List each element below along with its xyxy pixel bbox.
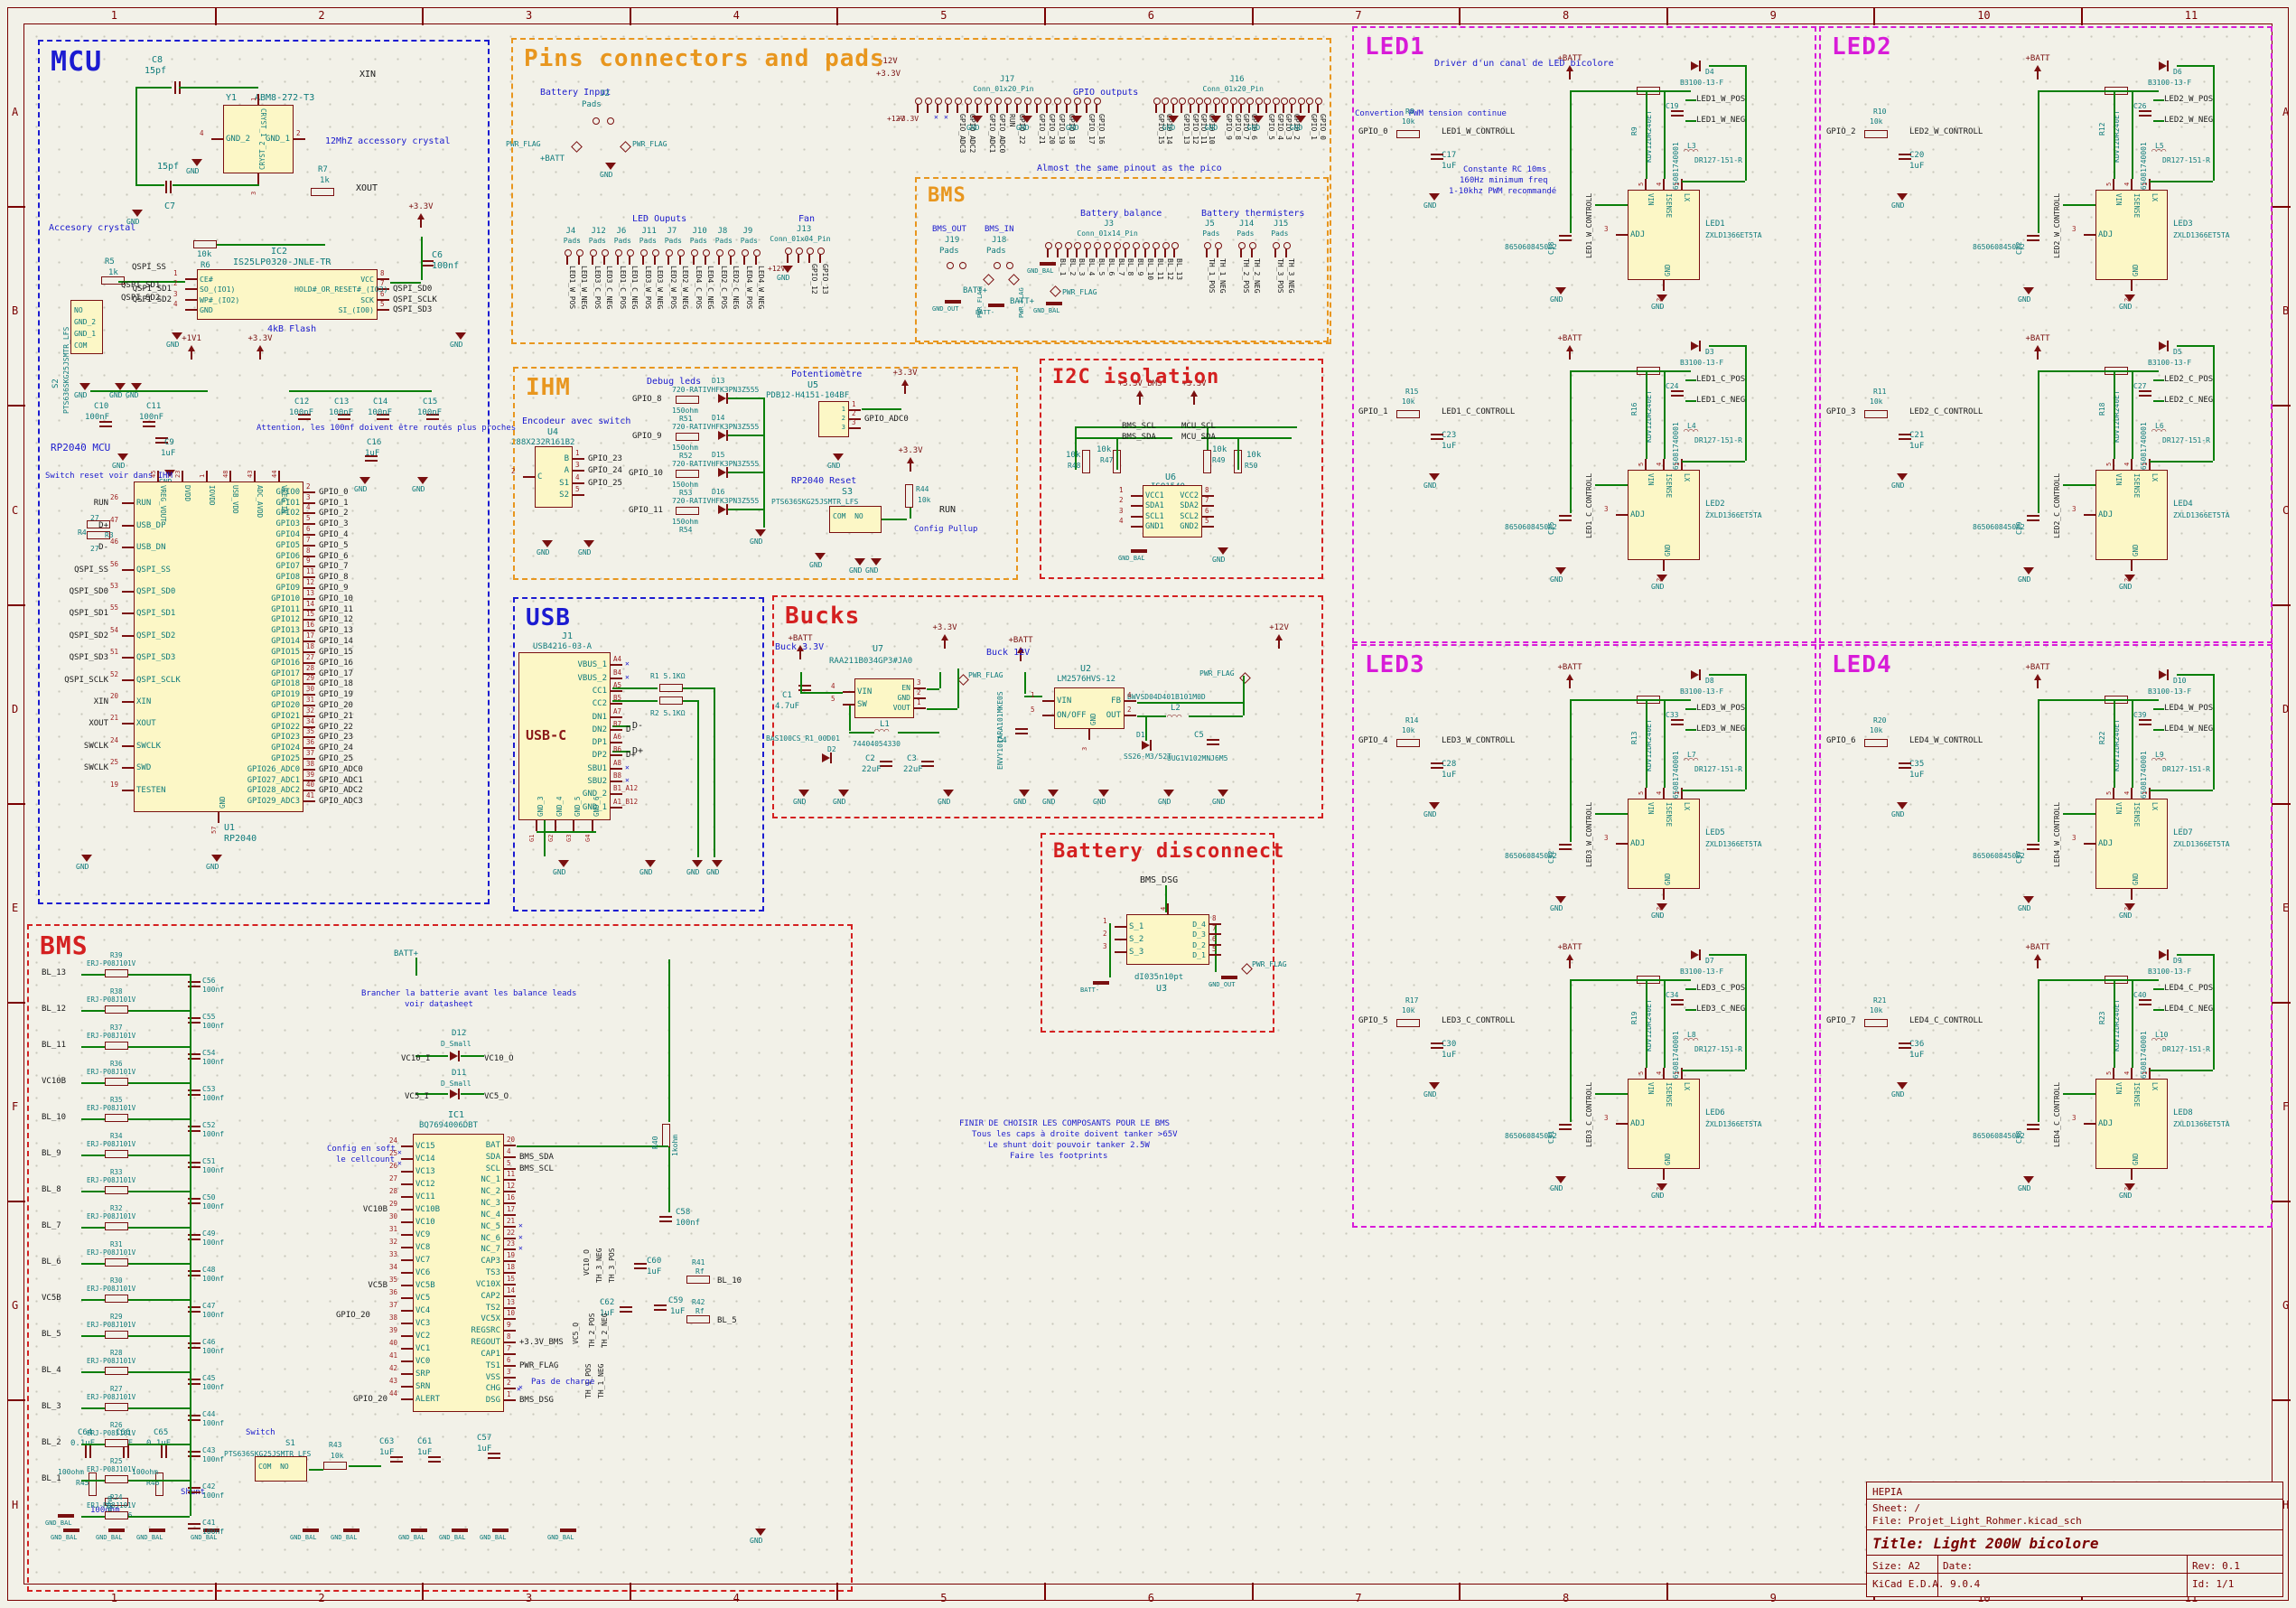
pin-stub bbox=[1096, 104, 1097, 113]
schematic-text: 865060845002 bbox=[1973, 1133, 2025, 1140]
pin-number: 4 bbox=[173, 301, 178, 308]
connector-ref-J9: J9 bbox=[743, 228, 753, 236]
pin-name: USB_DN bbox=[136, 544, 166, 552]
section-title-led3: LED3 bbox=[1365, 653, 1425, 677]
pin-name: VIN bbox=[1647, 473, 1655, 486]
pin-name: WP#_(IO2) bbox=[200, 296, 239, 304]
net-label: LED1_W_POS bbox=[1696, 96, 1745, 104]
gnd-symbol-icon bbox=[1295, 116, 1306, 123]
pin-number: 5 bbox=[507, 1160, 511, 1167]
pin-number: 18 bbox=[306, 643, 314, 650]
net-label: LED2_W_CONTROLL bbox=[1909, 128, 1983, 136]
schematic-text: LED3 bbox=[2173, 220, 2193, 229]
pin-stub bbox=[1046, 104, 1048, 113]
gnd-label: GND bbox=[1891, 1091, 1904, 1098]
pin-number: 8 bbox=[507, 1333, 511, 1341]
frame-coordinate-label: H bbox=[2282, 1500, 2289, 1510]
net-label: LED2_W_NEG bbox=[2164, 117, 2213, 125]
pin-stub bbox=[947, 104, 948, 113]
net-label: GPIO_9 bbox=[1225, 114, 1232, 140]
schematic-text: B3100-13-F bbox=[2148, 968, 2191, 976]
connector-value: Pads bbox=[1202, 230, 1219, 238]
pin-stub bbox=[603, 256, 605, 265]
schematic-text: Tous les caps à droite doivent tanker >6… bbox=[972, 1131, 1178, 1139]
wire bbox=[2153, 708, 2164, 710]
net-label: GPIO_ADC1 bbox=[988, 114, 995, 153]
wire bbox=[1570, 90, 1691, 92]
pin-stub bbox=[2131, 280, 2133, 291]
pin-stub bbox=[401, 1348, 413, 1350]
gnd-symbol-icon bbox=[1555, 896, 1566, 903]
pin-number: 31 bbox=[306, 696, 314, 704]
gnd-symbol-icon bbox=[1897, 473, 1908, 481]
frame-coordinate-label: 3 bbox=[526, 1593, 532, 1603]
schematic-text: R10 bbox=[1873, 108, 1886, 116]
pin-stub bbox=[1016, 104, 1018, 113]
wire bbox=[190, 1444, 191, 1480]
capacitor-symbol bbox=[1671, 390, 1684, 392]
capacitor-value: 100nf bbox=[202, 1492, 224, 1500]
pin-number: 25 bbox=[110, 759, 118, 766]
pin-stub bbox=[1616, 1123, 1628, 1125]
gnd-symbol-icon bbox=[1555, 1176, 1566, 1183]
net-label: LED3_W_NEG bbox=[656, 266, 663, 309]
schematic-text: D9 bbox=[2173, 958, 2182, 965]
frame-coordinate-label: 1 bbox=[111, 1593, 117, 1603]
gnd-label: GND bbox=[2018, 576, 2030, 584]
wire bbox=[81, 1118, 190, 1120]
pin-name: GPIO14 bbox=[220, 638, 300, 646]
wire bbox=[81, 1046, 190, 1048]
net-label: D+ bbox=[626, 752, 636, 760]
pin-stub bbox=[401, 1373, 413, 1375]
section-title-pins: Pins connectors and pads bbox=[524, 47, 885, 70]
pin-number: 14 bbox=[507, 1287, 515, 1295]
net-label: GPIO_ADC0 bbox=[319, 766, 363, 774]
pin-name: 1 bbox=[766, 407, 845, 413]
wire bbox=[2150, 181, 2213, 182]
wire bbox=[2038, 370, 2159, 372]
resistor-symbol bbox=[105, 1511, 128, 1519]
pin-name: GPIO9 bbox=[220, 584, 300, 593]
pin-stub bbox=[573, 458, 584, 460]
connector-ref-J3: J3 bbox=[1104, 220, 1114, 229]
resistor-symbol bbox=[105, 1114, 128, 1122]
pin-name: GPIO22 bbox=[220, 724, 300, 732]
pin-number: 21 bbox=[507, 1218, 515, 1225]
pin-stub bbox=[986, 104, 988, 113]
net-label: LED1_C_POS bbox=[1696, 376, 1745, 384]
schematic-text: R20 bbox=[1873, 717, 1886, 725]
pin-number: 3 bbox=[251, 192, 257, 195]
pin-name: ISENSE bbox=[2133, 802, 2141, 827]
section-title-led1: LED1 bbox=[1365, 35, 1425, 59]
pin-stub bbox=[1036, 104, 1038, 113]
wire bbox=[2038, 90, 2039, 233]
wire bbox=[2038, 699, 2159, 701]
gnd-symbol-icon bbox=[1657, 903, 1667, 911]
pin-number: 42 bbox=[389, 1365, 397, 1372]
pin-stub bbox=[2113, 1068, 2114, 1079]
wire bbox=[190, 1155, 191, 1191]
pin-number: 56 bbox=[110, 561, 118, 568]
wire bbox=[190, 1191, 191, 1227]
pin-name: SCL2 bbox=[1119, 513, 1199, 521]
wire bbox=[1745, 674, 1747, 790]
capacitor-ref: C49 bbox=[202, 1230, 215, 1238]
connector-value: Pads bbox=[1271, 230, 1288, 238]
connector-ref-J10: J10 bbox=[693, 228, 707, 236]
no-connect-icon: ✕ bbox=[934, 114, 938, 121]
capacitor-symbol bbox=[1431, 767, 1443, 769]
pin-number: 9 bbox=[507, 1322, 511, 1329]
net-label: BL_9 bbox=[42, 1150, 61, 1158]
inductor-icon: ◠◠◠ bbox=[2151, 1037, 2166, 1045]
pin-number: 3 bbox=[1604, 1115, 1609, 1122]
pin-number: 5 bbox=[1031, 706, 1035, 714]
connector-value: Conn_01x14_Pin bbox=[1077, 230, 1137, 238]
pin-stub bbox=[1066, 104, 1068, 113]
schematic-text: B3100-13-F bbox=[2148, 688, 2191, 696]
pin-name: LX bbox=[1684, 193, 1691, 201]
frame-coordinate-label: 4 bbox=[733, 10, 740, 21]
net-label: LED1_C_NEG bbox=[1696, 397, 1745, 405]
wire bbox=[1570, 979, 1691, 981]
net-label: GPIO_20 bbox=[297, 1396, 387, 1404]
pin-stub bbox=[1699, 669, 1701, 680]
net-label: GPIO_12 bbox=[1191, 114, 1199, 145]
chip-inner-label: NO bbox=[74, 307, 83, 314]
net-label: GPIO_ADC3 bbox=[319, 798, 363, 806]
pin-stub bbox=[2131, 459, 2133, 470]
net-label: QSPI_SD2 bbox=[18, 632, 108, 640]
section-title-battd: Battery disconnect bbox=[1053, 842, 1284, 862]
schematic-text: C24 bbox=[1666, 383, 1678, 390]
pin-number: 4 bbox=[2124, 463, 2131, 466]
pin-number: 3 bbox=[917, 679, 921, 687]
pin-number: 54 bbox=[110, 627, 118, 634]
pin-number: 29 bbox=[306, 675, 314, 682]
pin-name: GPIO27_ADC1 bbox=[220, 777, 300, 785]
resistor-symbol bbox=[1864, 130, 1888, 138]
capacitor-symbol bbox=[1899, 762, 1911, 764]
pin-number: 34 bbox=[389, 1264, 397, 1271]
pin-name: NC_5 bbox=[421, 1223, 500, 1231]
pin-number: 44 bbox=[389, 1390, 397, 1398]
capacitor-symbol bbox=[1559, 1128, 1572, 1130]
pin-number: 2 bbox=[173, 280, 178, 287]
gnd-label: GND bbox=[1550, 296, 1563, 304]
pin-number: 27 bbox=[389, 1175, 397, 1183]
pin-name: ADJ bbox=[2098, 231, 2113, 239]
frame-coordinate-label: F bbox=[12, 1101, 18, 1112]
pin-number: 8 bbox=[1205, 487, 1209, 494]
net-label: D+ bbox=[18, 522, 108, 530]
pin-stub bbox=[1067, 248, 1069, 257]
power-net-label: +BATT bbox=[1558, 664, 1582, 672]
title-block-sheet: Sheet: / bbox=[1872, 1502, 1920, 1514]
capacitor-symbol bbox=[2027, 235, 2039, 237]
net-label: LED1_C_POS bbox=[619, 266, 626, 309]
capacitor-symbol bbox=[2027, 1128, 2039, 1130]
schematic-text: ZXLD1366ET5TA bbox=[1705, 841, 1762, 848]
pin-name: QSPI_SCLK bbox=[136, 677, 181, 685]
wire bbox=[1709, 345, 1745, 347]
gnd-label: GND bbox=[1423, 811, 1436, 818]
wire bbox=[2150, 461, 2213, 463]
schematic-text: B3100-13-F bbox=[1680, 968, 1723, 976]
pin-name: ISENSE bbox=[1666, 802, 1673, 827]
pin-number: 7 bbox=[507, 1345, 511, 1352]
connector-value: Pads bbox=[741, 238, 758, 245]
schematic-text: 1uF bbox=[1442, 163, 1456, 171]
gnd-label: GND bbox=[1247, 125, 1260, 132]
frame-coordinate-label: B bbox=[2282, 305, 2289, 316]
schematic-text: C27 bbox=[2133, 383, 2146, 390]
divider bbox=[1867, 1573, 2282, 1574]
pin-stub bbox=[1240, 248, 1242, 257]
resistor-value: ERJ-P08J101V bbox=[87, 1033, 135, 1040]
net-label: LED4_W_CONTROLL bbox=[1909, 737, 1983, 745]
pin-stub bbox=[1172, 104, 1174, 113]
pin-number: 7 bbox=[1205, 497, 1209, 504]
pin-number: 41 bbox=[389, 1352, 397, 1360]
wire bbox=[1682, 790, 1745, 791]
net-label: GPIO_ADC0 bbox=[998, 114, 1005, 153]
schematic-text: 10k bbox=[1870, 118, 1882, 126]
net-label: SWCLK bbox=[18, 764, 108, 772]
pin-number: 38 bbox=[306, 761, 314, 768]
gnd-symbol-icon bbox=[1210, 116, 1221, 123]
gnd-symbol-icon bbox=[1253, 116, 1264, 123]
section-title-led2: LED2 bbox=[1832, 35, 1892, 59]
wire bbox=[1595, 813, 1628, 815]
net-label: LED4_C_POS bbox=[2164, 985, 2213, 993]
wire bbox=[2132, 370, 2133, 459]
net-label: VC5B bbox=[297, 1282, 387, 1290]
pin-name: VIN bbox=[1647, 193, 1655, 206]
pin-name: GPIO28_ADC2 bbox=[220, 787, 300, 795]
pin-stub bbox=[611, 742, 622, 743]
pin-name: VREG_IN bbox=[281, 485, 288, 514]
pin-name: ISENSE bbox=[2133, 193, 2141, 218]
pin-stub bbox=[1115, 951, 1126, 953]
pin-number: 30 bbox=[306, 686, 314, 693]
net-label: GPIO_23 bbox=[588, 455, 622, 463]
pin-name: ISENSE bbox=[1666, 193, 1673, 218]
pin-stub bbox=[1569, 959, 1571, 968]
pin-number: G3 bbox=[566, 835, 573, 842]
pin-stub bbox=[798, 254, 799, 263]
diode-icon bbox=[2159, 670, 2167, 679]
net-label: TH_1_POS bbox=[1208, 258, 1215, 294]
pin-stub bbox=[2113, 179, 2114, 190]
pin-stub bbox=[378, 309, 389, 311]
capacitor-symbol bbox=[2027, 1124, 2039, 1126]
wire bbox=[190, 1118, 191, 1155]
frame-tick bbox=[7, 803, 25, 805]
pin-name: DVDD bbox=[183, 485, 191, 501]
resistor-symbol bbox=[1864, 1019, 1888, 1027]
pin-stub bbox=[718, 256, 720, 265]
frame-tick bbox=[1666, 1583, 1668, 1601]
schematic-text: C39 bbox=[2133, 712, 2146, 719]
schematic-text: DR127-151-R bbox=[1694, 1046, 1742, 1053]
pin-name: S2 bbox=[490, 491, 569, 500]
pin-stub bbox=[2084, 1123, 2095, 1125]
pin-stub bbox=[122, 635, 134, 637]
wire bbox=[1570, 699, 1572, 842]
pin-number: 38 bbox=[389, 1314, 397, 1322]
pin-stub bbox=[504, 1260, 516, 1262]
pin-number: 2 bbox=[1103, 930, 1107, 938]
schematic-text: D10 bbox=[2173, 678, 2186, 685]
diode-icon bbox=[2159, 341, 2167, 351]
schematic-text: 10k bbox=[1402, 1007, 1414, 1014]
gnd-symbol-icon bbox=[1897, 193, 1908, 201]
inductor-icon: ◠◠◠ bbox=[2151, 148, 2166, 156]
pin-stub bbox=[1134, 248, 1136, 257]
pin-stub bbox=[917, 104, 919, 113]
pin-name: SBU1 bbox=[527, 765, 607, 773]
connector-ref-J5: J5 bbox=[1205, 220, 1215, 229]
net-label: LED3_C_CONTROLL bbox=[1442, 1017, 1515, 1025]
power-arrow-icon bbox=[2034, 674, 2041, 680]
connector-ref-J8: J8 bbox=[718, 228, 728, 236]
frame-coordinate-label: 7 bbox=[1355, 1593, 1361, 1603]
pin-stub bbox=[1663, 280, 1665, 291]
capacitor-symbol bbox=[1431, 1042, 1443, 1044]
pin-number: 1 bbox=[200, 474, 206, 478]
pin-stub bbox=[1106, 248, 1107, 257]
pin-stub bbox=[573, 494, 584, 496]
pin-name: S1 bbox=[490, 480, 569, 488]
capacitor-symbol bbox=[2139, 115, 2151, 117]
pin-number: 6 bbox=[306, 526, 311, 533]
capacitor-value: 100nf bbox=[202, 1312, 224, 1319]
frame-tick bbox=[1044, 1583, 1046, 1601]
pin-stub bbox=[1088, 729, 1090, 740]
pin-name: GND bbox=[2133, 1153, 2140, 1165]
net-label: TH_3_NEG bbox=[1287, 258, 1294, 294]
wire bbox=[2114, 979, 2115, 1068]
pin-number: 1 bbox=[2142, 463, 2149, 466]
pin-name: VIN bbox=[1647, 1082, 1655, 1095]
pin-name: VIN bbox=[2115, 1082, 2123, 1095]
pin-stub bbox=[1317, 104, 1319, 113]
schematic-text: C26 bbox=[2133, 103, 2146, 110]
pin-stub bbox=[1198, 104, 1199, 113]
frame-coordinate-label: G bbox=[12, 1300, 18, 1311]
pin-stub bbox=[573, 482, 584, 484]
pin-number: 1 bbox=[507, 1391, 511, 1398]
pin-stub bbox=[1163, 104, 1165, 113]
pin-stub bbox=[1569, 679, 1571, 688]
gnd-label: GND bbox=[2018, 296, 2030, 304]
wire bbox=[1646, 699, 1647, 788]
pin-number: 4 bbox=[1657, 791, 1663, 795]
gnd-symbol-icon bbox=[1657, 1183, 1667, 1191]
wire bbox=[1646, 90, 1647, 179]
frame-tick bbox=[422, 7, 424, 25]
wire bbox=[1570, 699, 1691, 701]
wire bbox=[1685, 1009, 1696, 1011]
wire bbox=[2213, 345, 2215, 461]
pin-stub bbox=[504, 1168, 516, 1170]
net-label: QSPI_SD0 bbox=[393, 285, 432, 294]
frame-coordinate-label: C bbox=[2282, 505, 2289, 516]
gnd-symbol-icon bbox=[2023, 896, 2034, 903]
net-label: LED2_W_CONTROLL bbox=[2054, 193, 2061, 258]
title-block-date: Date: bbox=[1943, 1560, 1973, 1572]
power-arrow-icon bbox=[2034, 954, 2041, 960]
frame-tick bbox=[1459, 1583, 1461, 1601]
pin-stub bbox=[1232, 104, 1234, 113]
pin-number: 9 bbox=[306, 557, 311, 565]
pin-stub bbox=[1215, 104, 1217, 113]
pin-number: 19 bbox=[110, 781, 118, 789]
pin-name: NC_1 bbox=[421, 1176, 500, 1184]
schematic-text: R22 bbox=[2099, 732, 2106, 744]
pin-number: B5 bbox=[613, 695, 621, 702]
schematic-text: C36 bbox=[1909, 1041, 1924, 1049]
resistor-value: ERJ-P08J101V bbox=[87, 1285, 135, 1293]
net-label: RUN bbox=[18, 500, 108, 508]
net-label: TH_2_POS bbox=[1242, 258, 1249, 294]
net-label: BL_8 bbox=[1126, 258, 1134, 276]
pin-number: 4 bbox=[507, 1148, 511, 1155]
pin-stub bbox=[1086, 104, 1087, 113]
pin-number: 5 bbox=[575, 486, 580, 493]
pin-number: G1 bbox=[529, 835, 536, 842]
schematic-text: 10k bbox=[1402, 118, 1414, 126]
net-label: GPIO_16 bbox=[319, 659, 353, 668]
connector-ref-J13: J13 bbox=[797, 226, 811, 234]
pin-name: GND_5 bbox=[574, 796, 582, 817]
power-net-label: +BATT bbox=[1558, 944, 1582, 952]
net-label: BL_1 bbox=[1059, 258, 1066, 276]
pin-name: DSG bbox=[421, 1397, 500, 1405]
frame-tick bbox=[2273, 206, 2291, 208]
wire bbox=[2063, 204, 2095, 206]
net-label: LED3_C_POS bbox=[593, 266, 601, 309]
net-label: BL_7 bbox=[42, 1222, 61, 1230]
divider bbox=[1867, 1555, 2282, 1556]
connector-ref-J4: J4 bbox=[566, 228, 576, 236]
diode-icon bbox=[1691, 341, 1699, 351]
pin-name: ADJ bbox=[2098, 1120, 2113, 1128]
pin-name: GPIO4 bbox=[220, 531, 300, 539]
pin-stub bbox=[1026, 104, 1028, 113]
net-label: BL_7 bbox=[1117, 258, 1125, 276]
frame-coordinate-label: 1 bbox=[111, 10, 117, 21]
power-net-label: GND_BAL bbox=[1027, 268, 1054, 275]
pin-name: ISENSE bbox=[1666, 473, 1673, 498]
gnd-label: GND bbox=[966, 125, 979, 132]
pin-name: VCC2 bbox=[1119, 492, 1199, 500]
pin-number: 8 bbox=[380, 270, 385, 277]
inductor-icon: ◠◠◠ bbox=[2151, 757, 2166, 765]
schematic-text: B3100-13-F bbox=[1680, 79, 1723, 87]
pin-number: 43 bbox=[247, 471, 254, 478]
net-label: BL_4 bbox=[42, 1367, 61, 1375]
gnd-symbol-icon bbox=[2124, 575, 2135, 582]
pin-stub bbox=[1663, 1169, 1665, 1180]
schematic-text: C35 bbox=[1909, 761, 1924, 769]
pin-stub bbox=[1057, 248, 1059, 257]
pin-stub bbox=[1300, 104, 1302, 113]
power-arrow-icon bbox=[1566, 674, 1573, 680]
